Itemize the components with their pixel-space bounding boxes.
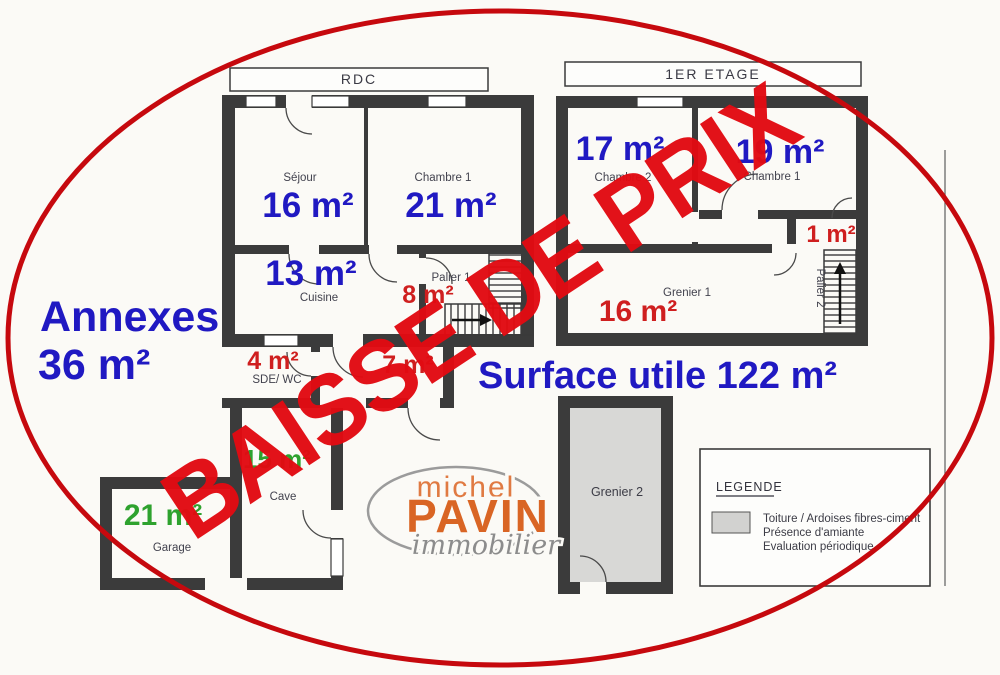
etage-title-bar: 1ER ETAGE bbox=[565, 62, 861, 86]
legend-box: LEGENDE Toiture / Ardoises fibres-ciment… bbox=[700, 449, 930, 586]
window-icon bbox=[428, 96, 466, 107]
annexes-area: 36 m² bbox=[38, 341, 150, 389]
legend-line-3: Evaluation périodique bbox=[763, 541, 874, 553]
window-icon bbox=[264, 335, 298, 346]
rdc-chambre1-label: Chambre 1 bbox=[415, 172, 472, 184]
legend-title: LEGENDE bbox=[716, 480, 783, 494]
etage-grenier1-area: 16 m² bbox=[599, 295, 677, 328]
rdc-garage-label: Garage bbox=[153, 542, 191, 554]
door-arc-icon bbox=[303, 510, 331, 538]
legend-swatch bbox=[712, 512, 750, 533]
rdc-cuisine-area: 13 m² bbox=[265, 254, 356, 293]
grenier2-room: Grenier 2 bbox=[558, 396, 673, 594]
etage-windows bbox=[637, 97, 683, 107]
etage-palier2-label: Palier 2 bbox=[814, 269, 826, 308]
grenier2-label: Grenier 2 bbox=[591, 485, 643, 499]
window-icon bbox=[637, 97, 683, 107]
agency-logo: michel PAVIN immobilier bbox=[368, 467, 562, 561]
window-icon bbox=[312, 96, 349, 107]
legend-line-2: Présence d'amiante bbox=[763, 527, 864, 539]
door-arc-icon bbox=[286, 108, 312, 134]
surface-utile-label: Surface utile 122 m² bbox=[478, 355, 837, 397]
etage-stairs bbox=[824, 250, 856, 334]
door-arc-icon bbox=[774, 253, 796, 275]
rdc-sejour-area: 16 m² bbox=[262, 186, 353, 225]
etage-palier2-area: 1 m² bbox=[806, 221, 855, 248]
annexes-label: Annexes bbox=[40, 293, 219, 341]
rdc-sejour-label: Séjour bbox=[283, 172, 316, 184]
rdc-cuisine-label: Cuisine bbox=[300, 292, 338, 304]
window-icon bbox=[331, 539, 343, 576]
rdc-title: RDC bbox=[341, 71, 377, 87]
floorplan-scan: RDC 1ER ETAGE bbox=[0, 0, 1000, 675]
window-icon bbox=[246, 96, 276, 107]
rdc-chambre1-area: 21 m² bbox=[405, 186, 496, 225]
rdc-title-bar: RDC bbox=[230, 68, 488, 91]
door-arc-icon bbox=[369, 254, 397, 282]
legend-line-1: Toiture / Ardoises fibres-ciment bbox=[763, 513, 921, 525]
logo-tagline: immobilier bbox=[412, 530, 562, 561]
